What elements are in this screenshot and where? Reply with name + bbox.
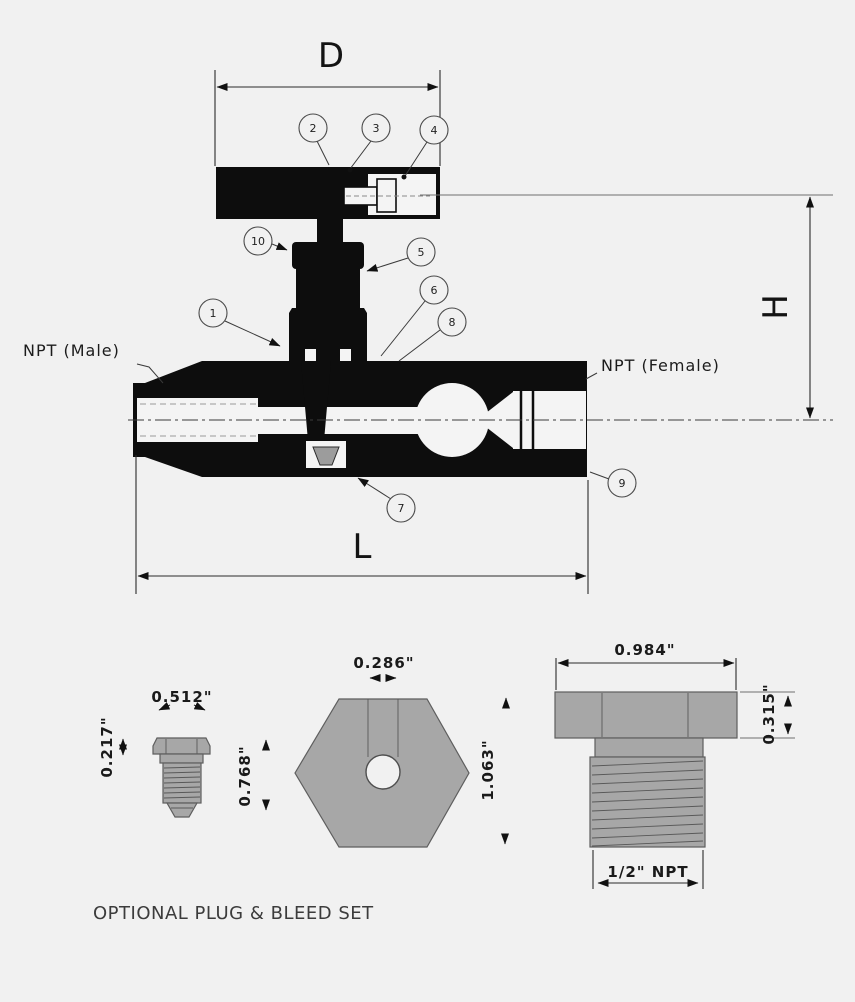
balloon-7-number: 7 (398, 502, 405, 515)
bleed-screw-length-dim: 0.768" (236, 745, 254, 806)
dim-l-label: L (353, 527, 372, 567)
valve-technical-drawing: D (0, 0, 855, 1002)
bleed-screw-tip (167, 803, 197, 817)
bleed-screw-tip-dim: 0.217" (98, 716, 116, 777)
plug-thread-dim: 1/2" NPT (607, 863, 688, 881)
bleed-screw-head (153, 738, 210, 754)
balloon-9: 9 (590, 469, 636, 497)
balloon-7: 7 (358, 478, 415, 522)
balloon-2: 2 (299, 114, 329, 165)
balloon-8: 8 (399, 308, 466, 361)
plug-hole-dia-dim: 0.286" (353, 654, 414, 672)
plug-hex-height-dim: 0.315" (760, 683, 778, 744)
npt-female-label: NPT (Female) (601, 356, 720, 375)
npt-male-label: NPT (Male) (23, 341, 120, 360)
balloon-5: 5 (367, 238, 435, 271)
balloon-3-number: 3 (373, 122, 380, 135)
balloon-6: 6 (381, 276, 448, 356)
valve-handle (216, 167, 440, 219)
balloon-8-number: 8 (449, 316, 456, 329)
bleed-screw-view: 0.512" 0.217" 0.768" (98, 688, 266, 817)
balloon-3: 3 (348, 114, 391, 173)
balloon-1: 1 (199, 299, 280, 346)
dim-h-label: H (756, 294, 796, 320)
balloon-2-number: 2 (310, 122, 317, 135)
plug-bleed-set: 0.512" 0.217" 0.768" 0.28 (93, 641, 795, 924)
plug-hex-width-dim: 0.984" (614, 641, 675, 659)
valve-body (133, 361, 587, 477)
plug-hex-head (555, 692, 737, 738)
balloon-1-number: 1 (210, 307, 217, 320)
balloon-4-number: 4 (431, 124, 438, 137)
balloon-10: 10 (244, 227, 287, 255)
set-caption: OPTIONAL PLUG & BLEED SET (93, 903, 374, 924)
valve-datasheet-page: D (0, 0, 855, 1002)
plug-across-flats-dim: 1.063" (479, 739, 497, 800)
balloon-9-number: 9 (619, 477, 626, 490)
plug-end-view: 0.286" 1.063" (295, 654, 506, 847)
dimension-d: D (215, 36, 440, 166)
valve-stem-bonnet (289, 218, 367, 361)
plug-side-view: 0.984" 0.315" 1/2" NPT (555, 641, 795, 889)
bleed-screw-width-dim: 0.512" (151, 688, 212, 706)
balloon-5-number: 5 (418, 246, 425, 259)
plug-center-hole (366, 755, 400, 789)
dim-d-label: D (318, 36, 344, 76)
balloon-6-number: 6 (431, 284, 438, 297)
balloon-10-number: 10 (251, 235, 265, 248)
valve-cross-section: D (23, 36, 833, 594)
